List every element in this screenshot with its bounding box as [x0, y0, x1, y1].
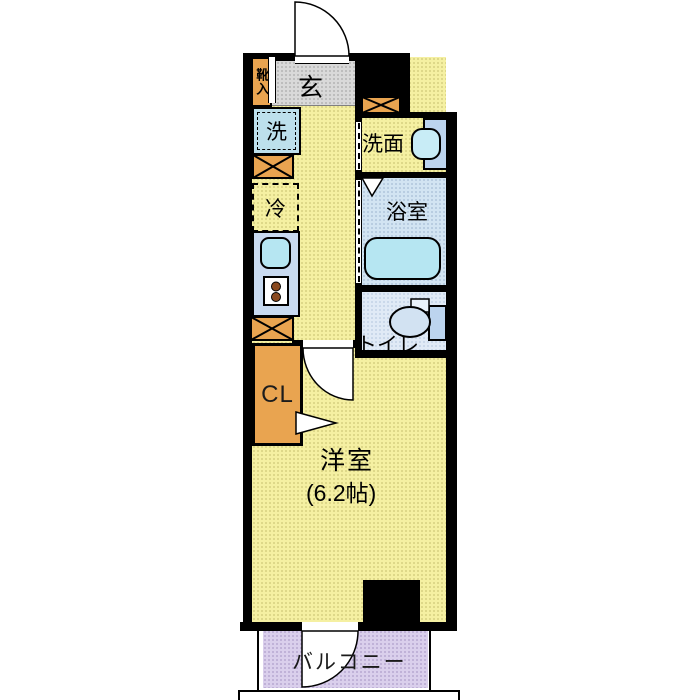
closet-label: CL [261, 381, 294, 409]
wall-washroom-top [355, 112, 457, 118]
closet: CL [252, 343, 303, 446]
sliding-door-icon [356, 122, 361, 170]
floor-plan: 靴入 洗 冷 CL [0, 0, 700, 700]
balcony-rail-left [257, 630, 259, 691]
wall-left [243, 53, 252, 631]
fridge-label: 冷 [265, 193, 286, 223]
washroom-label: 洗面 [362, 128, 404, 158]
kitchen-counter [252, 231, 300, 317]
balcony-base-slab [238, 690, 460, 700]
bathroom-label: 浴室 [386, 196, 428, 226]
balcony-door-opening [302, 622, 358, 631]
sliding-door-icon [356, 180, 361, 283]
bathroom-floor [362, 178, 446, 285]
entrance-door-arc-icon [295, 2, 349, 56]
balcony-label: バルコニー [292, 646, 407, 676]
entry-duct-block [355, 53, 410, 117]
entrance-label: 玄 [298, 68, 323, 104]
wall-washroom-bathroom [362, 172, 446, 178]
room-door-opening [303, 340, 353, 348]
refrigerator-space: 冷 [252, 183, 299, 232]
toilet-label: トイレ [356, 329, 419, 359]
balcony-rail-right [429, 630, 431, 691]
washer-label: 洗 [266, 116, 287, 146]
wall-right [446, 112, 457, 631]
main-room-label: 洋室 [320, 441, 374, 477]
shoe-cabinet-door-line [268, 57, 276, 103]
main-room-size-label: (6.2帖) [306, 474, 376, 508]
wall-bathroom-toilet [362, 285, 446, 292]
shoe-cabinet-label: 靴入 [255, 68, 269, 96]
pillar-bottom-right [363, 580, 420, 627]
entrance-door-opening [295, 52, 349, 64]
washing-machine-space: 洗 [252, 107, 301, 155]
